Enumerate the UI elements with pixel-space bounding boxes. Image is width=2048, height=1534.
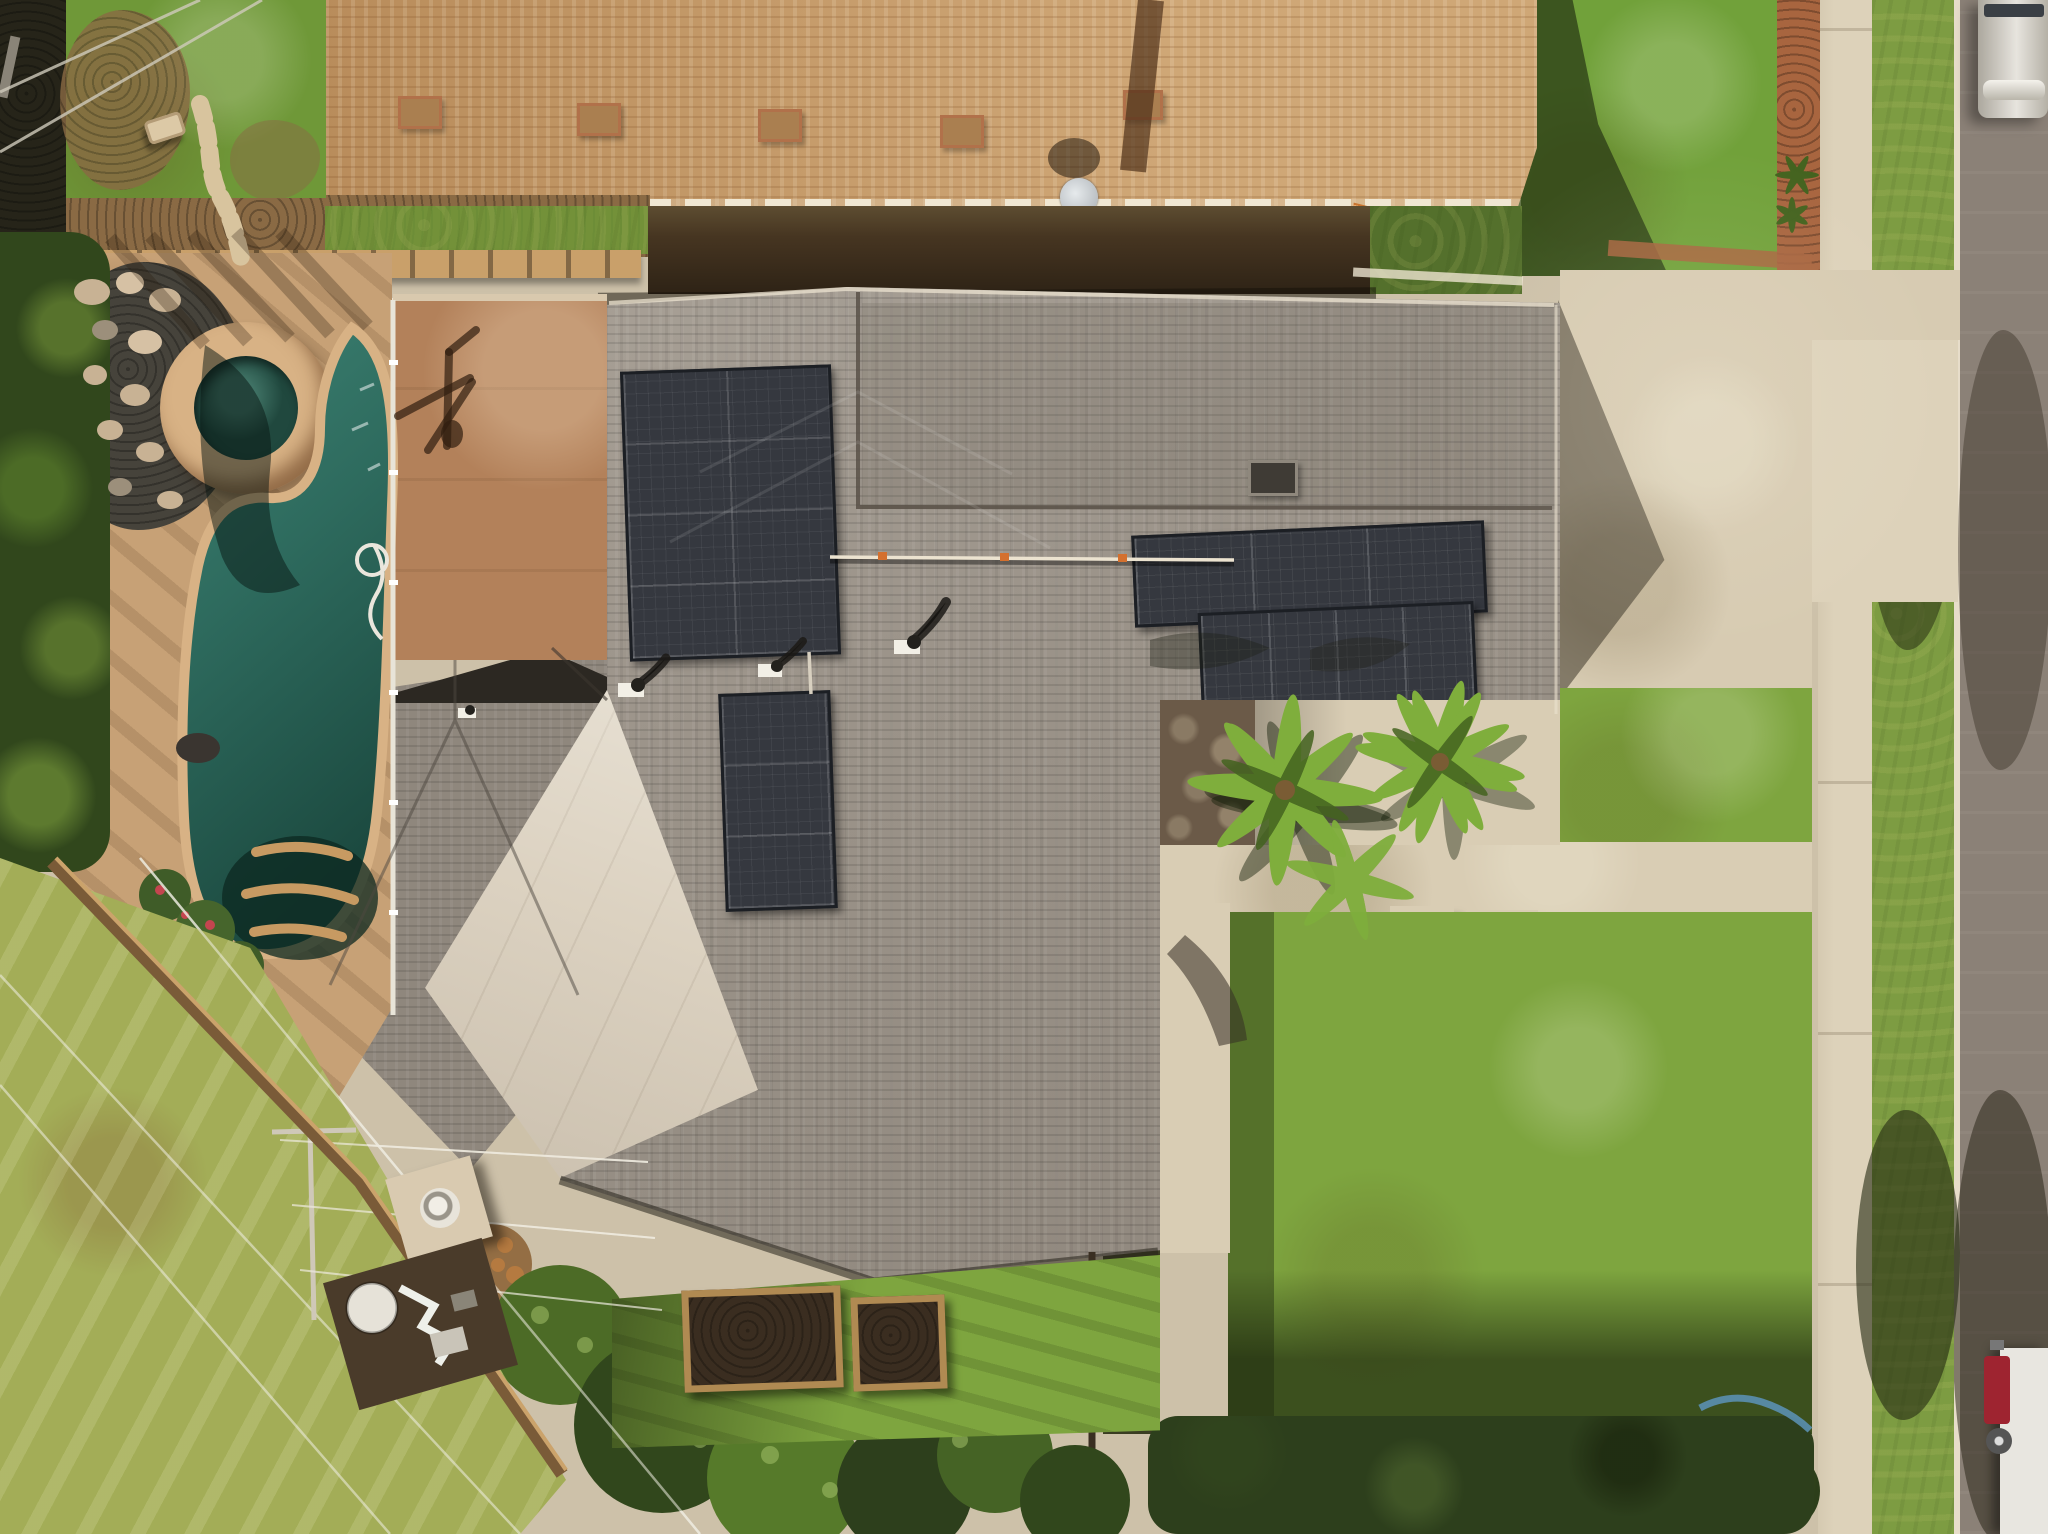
aerial-photo-canvas xyxy=(0,0,2048,1534)
pool-equipment xyxy=(0,0,2048,1534)
pickup-wheel xyxy=(1982,38,2014,70)
truck-mirror xyxy=(1990,1340,2004,1350)
truck-red-cab xyxy=(1984,1356,2010,1424)
pickup-bumper xyxy=(1983,80,2045,100)
pickup-windshield xyxy=(1984,4,2044,17)
truck-wheel xyxy=(1986,1428,2012,1454)
